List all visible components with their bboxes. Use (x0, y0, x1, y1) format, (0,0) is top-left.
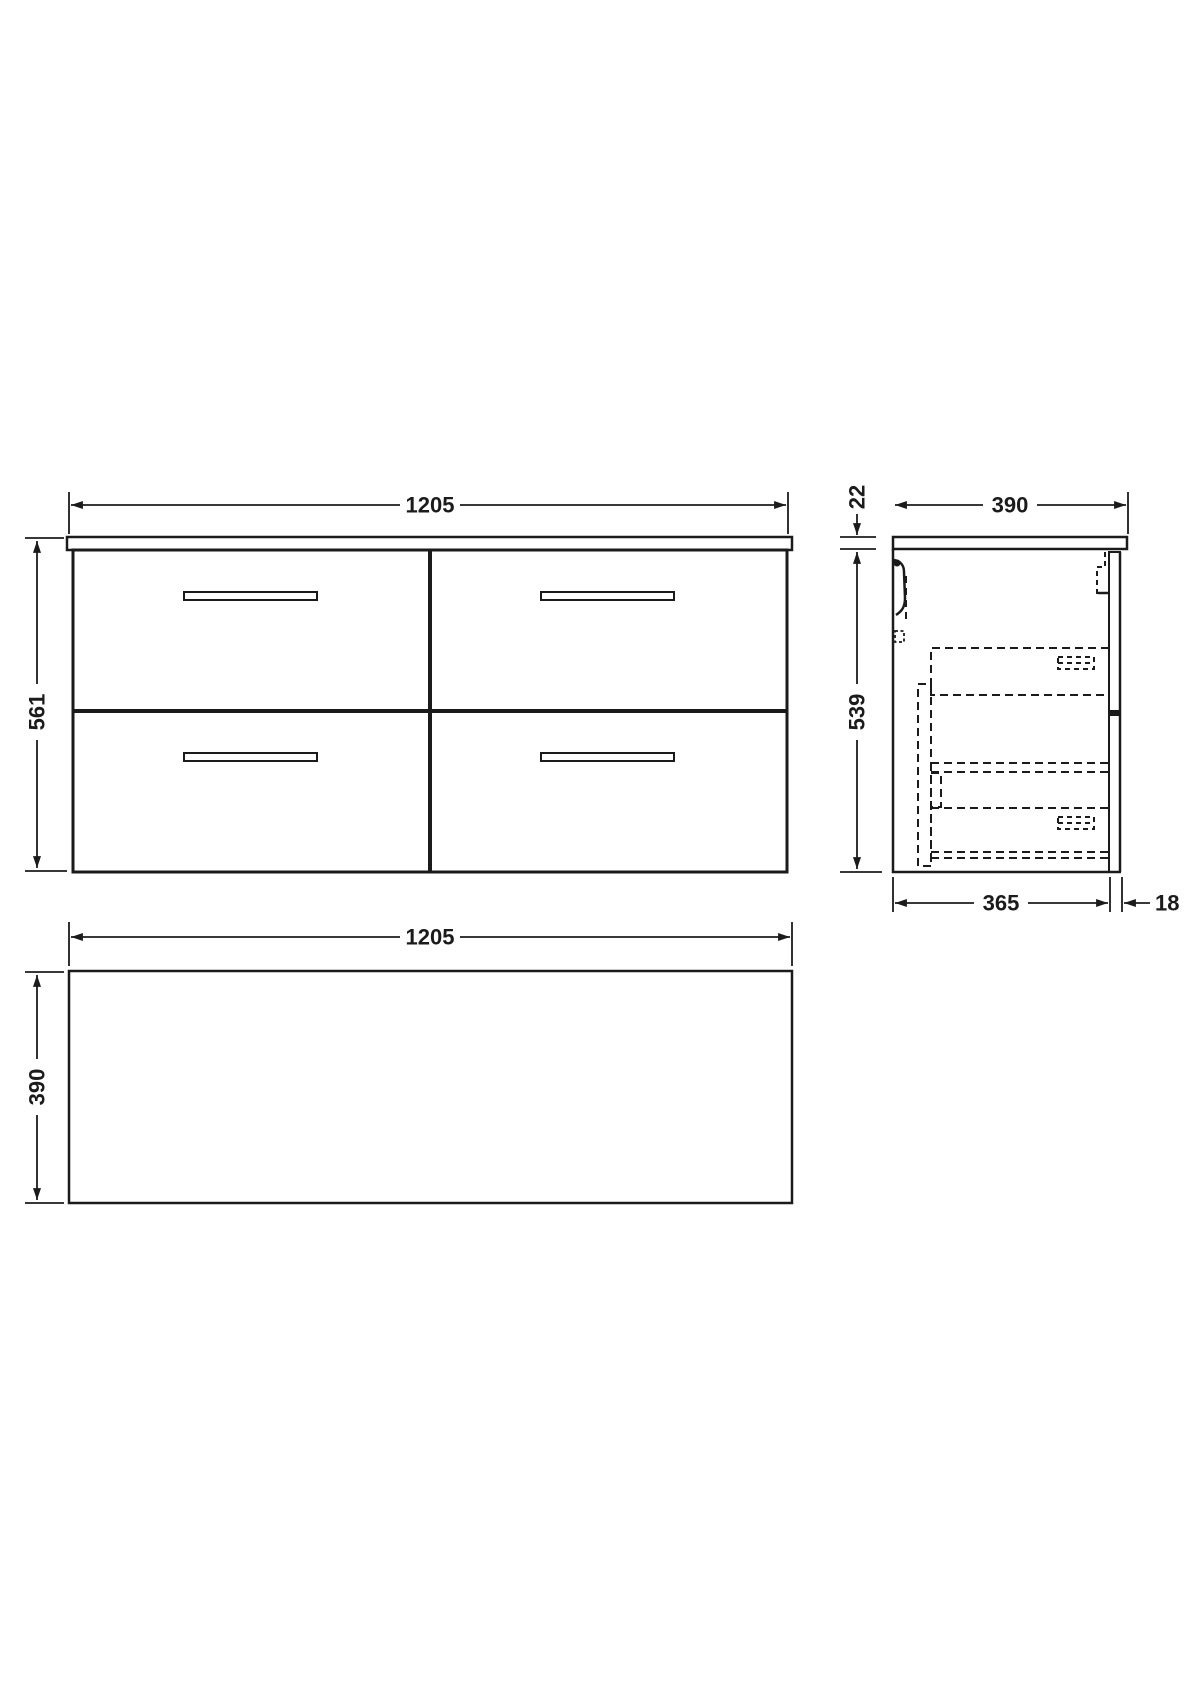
drawing-canvas: 1205 561 (0, 0, 1200, 1698)
front-wall-bracket-hook (894, 560, 905, 615)
drawer-handle-top-right (541, 592, 674, 600)
dim-label-plan-depth: 390 (25, 1069, 50, 1106)
side-panel-junction-mark (1108, 710, 1121, 716)
front-worktop (67, 537, 792, 550)
side-view: 22 390 539 365 18 (840, 485, 1179, 916)
side-worktop-dimension (840, 514, 876, 549)
drawer-handle-bottom-left (184, 753, 317, 761)
drawer-handle-top-left (184, 592, 317, 600)
dim-label-side-internal-depth: 365 (983, 891, 1020, 916)
dim-label-front-width: 1205 (406, 493, 455, 518)
dim-label-side-back-panel: 18 (1155, 891, 1179, 916)
rear-wall-bracket (1097, 552, 1109, 593)
side-internal-drawers (918, 648, 1109, 866)
side-worktop (893, 537, 1127, 549)
drawer-handle-bottom-right (541, 753, 674, 761)
dim-label-side-depth: 390 (992, 493, 1029, 518)
dim-label-side-worktop: 22 (845, 485, 870, 509)
dim-label-front-height: 561 (25, 694, 50, 731)
dim-label-plan-width: 1205 (406, 925, 455, 950)
drawer-front-panel (918, 684, 931, 866)
front-wall-bracket-foot (895, 631, 904, 642)
front-view: 1205 561 (25, 492, 793, 872)
front-wall-bracket-pin (894, 560, 901, 567)
plan-view: 1205 390 (25, 922, 793, 1203)
technical-drawing-svg: 1205 561 (0, 0, 1200, 1698)
upper-drawer-box (931, 648, 1109, 695)
dim-label-side-height: 539 (845, 694, 870, 731)
lower-drawer-front-edge (931, 773, 941, 807)
plan-worktop-outline (69, 971, 792, 1203)
